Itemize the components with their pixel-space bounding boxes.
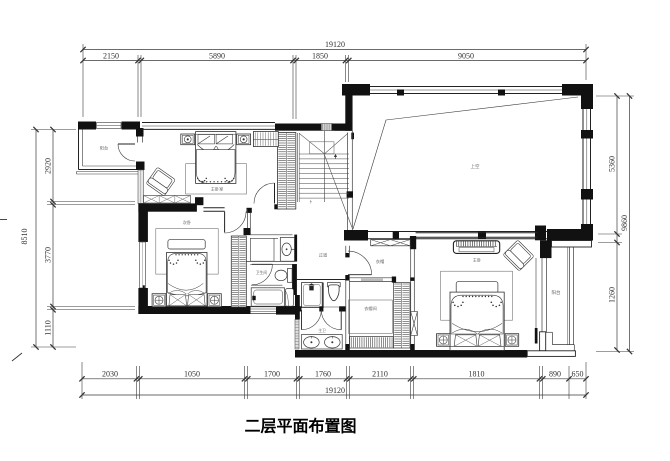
svg-text:3770: 3770 [44, 247, 53, 263]
svg-text:2030: 2030 [102, 369, 118, 378]
svg-text:上空: 上空 [471, 163, 480, 169]
svg-text:主卧: 主卧 [473, 257, 481, 264]
svg-text:9860: 9860 [620, 215, 629, 231]
svg-text:1810: 1810 [469, 369, 485, 378]
svg-text:650: 650 [572, 369, 584, 378]
svg-text:19120: 19120 [325, 40, 345, 49]
svg-text:1760: 1760 [315, 369, 331, 378]
svg-text:卫生间: 卫生间 [256, 270, 268, 275]
svg-text:次卧: 次卧 [183, 219, 191, 226]
svg-text:8510: 8510 [20, 229, 29, 245]
svg-text:5360: 5360 [608, 156, 617, 172]
svg-text:主卫: 主卫 [318, 328, 326, 333]
svg-text:过道: 过道 [319, 252, 328, 259]
svg-text:2150: 2150 [103, 52, 119, 61]
svg-text:二层平面布置图: 二层平面布置图 [244, 417, 356, 436]
svg-text:2920: 2920 [44, 158, 53, 174]
svg-text:9050: 9050 [458, 52, 474, 61]
svg-text:卜: 卜 [309, 199, 313, 204]
svg-text:阳台: 阳台 [552, 289, 561, 296]
svg-text:19120: 19120 [325, 386, 345, 395]
svg-text:阳台: 阳台 [100, 145, 108, 152]
svg-text:1700: 1700 [264, 369, 280, 378]
svg-text:衣帽: 衣帽 [376, 258, 384, 265]
svg-text:主卧室: 主卧室 [211, 186, 224, 193]
svg-text:1850: 1850 [312, 52, 328, 61]
svg-text:1260: 1260 [608, 287, 617, 303]
svg-text:2110: 2110 [372, 369, 388, 378]
svg-text:5890: 5890 [209, 52, 225, 61]
svg-text:890: 890 [549, 369, 561, 378]
svg-text:衣帽间: 衣帽间 [364, 305, 377, 312]
svg-text:1110: 1110 [44, 320, 53, 335]
svg-text:1050: 1050 [184, 369, 200, 378]
